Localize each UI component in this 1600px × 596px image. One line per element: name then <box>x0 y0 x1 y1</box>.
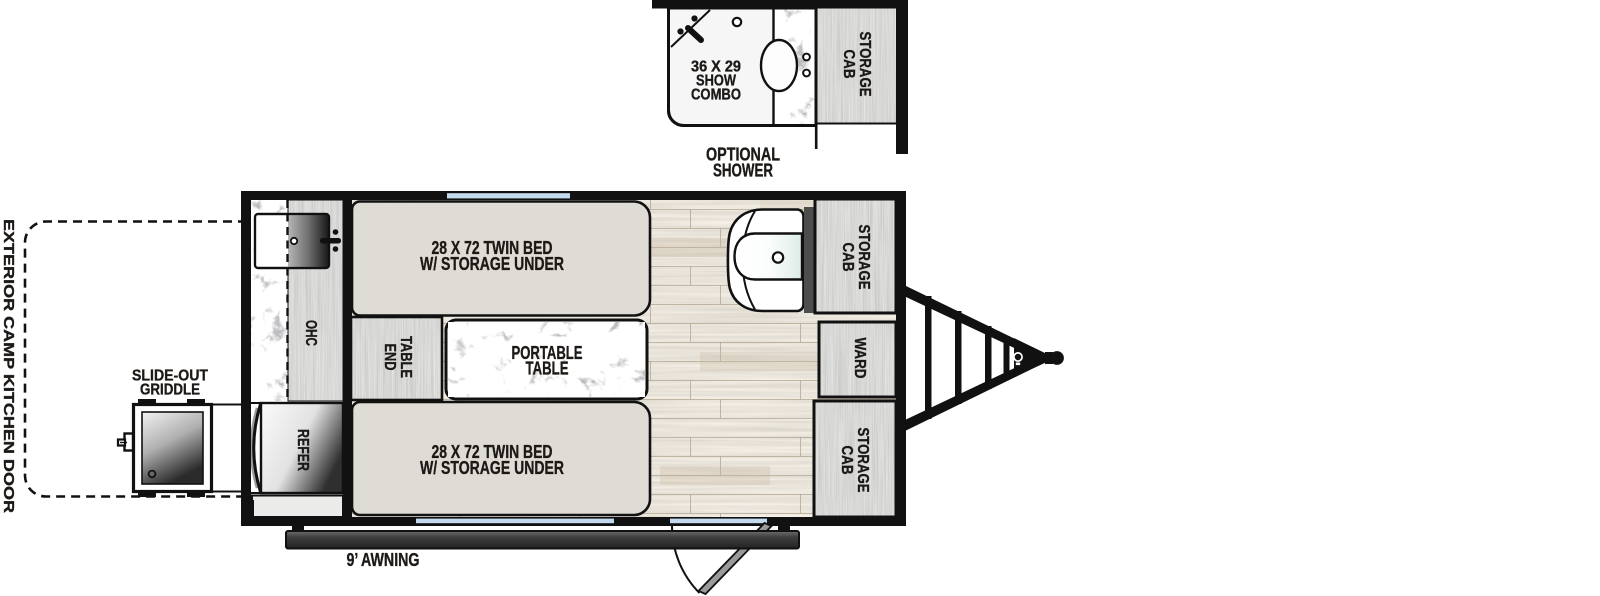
svg-text:STORAGE: STORAGE <box>855 225 872 290</box>
svg-text:GRIDDLE: GRIDDLE <box>140 382 200 399</box>
svg-text:COMBO: COMBO <box>691 87 741 104</box>
svg-text:TABLE: TABLE <box>397 336 414 378</box>
svg-text:9’ AWNING: 9’ AWNING <box>347 550 420 570</box>
svg-text:WARD: WARD <box>851 338 868 379</box>
svg-text:CAB: CAB <box>840 50 857 79</box>
svg-text:W/ STORAGE UNDER: W/ STORAGE UNDER <box>420 254 564 274</box>
svg-text:STORAGE: STORAGE <box>854 428 871 493</box>
svg-text:EXTERIOR CAMP KITCHEN DOOR: EXTERIOR CAMP KITCHEN DOOR <box>0 219 17 513</box>
svg-text:STORAGE: STORAGE <box>856 32 873 97</box>
svg-text:W/ STORAGE UNDER: W/ STORAGE UNDER <box>420 458 564 478</box>
svg-text:OHC: OHC <box>302 320 319 346</box>
svg-text:REFER: REFER <box>294 429 311 471</box>
svg-text:CAB: CAB <box>839 243 856 272</box>
svg-text:END: END <box>381 344 398 371</box>
svg-text:CAB: CAB <box>838 446 855 475</box>
svg-text:TABLE: TABLE <box>526 359 569 379</box>
svg-text:SHOWER: SHOWER <box>713 161 773 181</box>
